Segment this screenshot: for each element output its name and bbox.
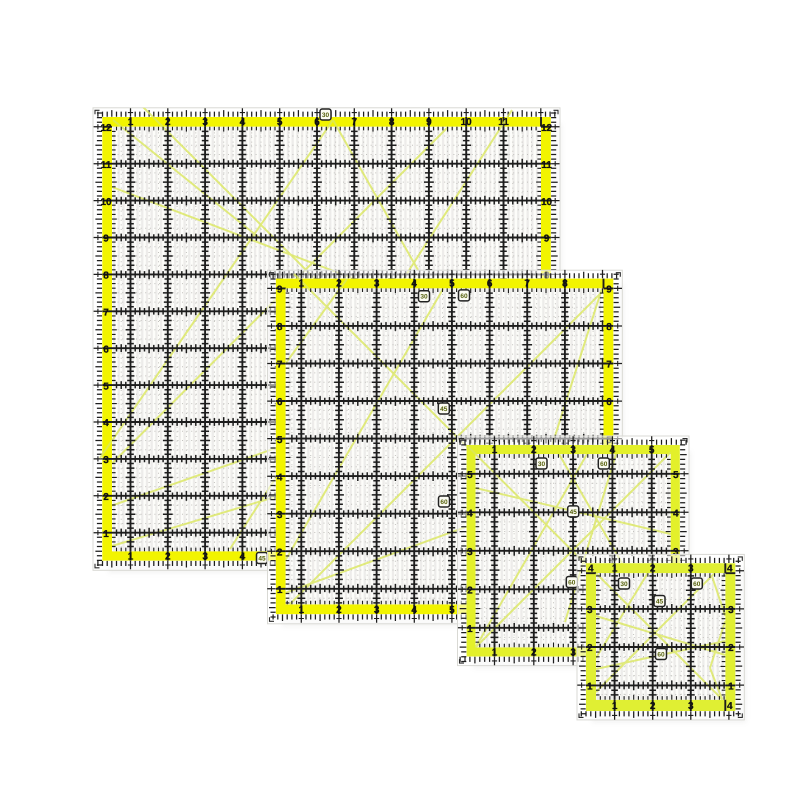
svg-text:3: 3 [688,564,694,575]
svg-text:2: 2 [650,564,656,575]
svg-text:30: 30 [420,294,428,301]
svg-text:4: 4 [240,117,246,128]
svg-text:3: 3 [688,701,694,712]
svg-text:1: 1 [492,648,498,659]
svg-text:3: 3 [103,455,109,466]
svg-text:2: 2 [531,445,537,456]
svg-text:60: 60 [568,579,576,586]
svg-text:8: 8 [389,117,395,128]
svg-text:11: 11 [541,160,552,171]
svg-text:12: 12 [100,123,112,134]
svg-text:30: 30 [538,461,546,468]
svg-text:60: 60 [440,499,448,506]
svg-text:1: 1 [299,605,305,616]
svg-text:3: 3 [728,605,734,616]
svg-text:6: 6 [487,279,493,290]
svg-text:4: 4 [277,472,283,483]
svg-text:60: 60 [460,293,468,300]
svg-text:45: 45 [656,598,664,605]
svg-text:4: 4 [240,552,246,563]
svg-text:2: 2 [103,492,109,503]
svg-text:3: 3 [467,547,473,558]
svg-text:4: 4 [610,445,616,456]
svg-text:5: 5 [673,470,679,481]
svg-text:1: 1 [492,445,498,456]
svg-text:5: 5 [449,605,455,616]
svg-text:5: 5 [103,381,109,392]
svg-text:8: 8 [562,279,568,290]
svg-text:3: 3 [587,605,593,616]
svg-text:60: 60 [657,651,665,658]
svg-text:9: 9 [426,117,432,128]
svg-text:2: 2 [336,279,342,290]
svg-text:2: 2 [336,605,342,616]
svg-text:10: 10 [100,197,112,208]
svg-text:9: 9 [544,234,550,245]
svg-text:12: 12 [541,123,553,134]
svg-text:1: 1 [612,701,618,712]
svg-text:1: 1 [612,564,618,575]
svg-text:7: 7 [103,308,109,319]
svg-text:9: 9 [606,285,612,296]
svg-text:3: 3 [374,279,380,290]
svg-text:60: 60 [600,461,608,468]
svg-text:5: 5 [277,117,283,128]
svg-text:4: 4 [411,279,417,290]
svg-text:6: 6 [277,397,283,408]
svg-text:4: 4 [467,509,473,520]
svg-text:4: 4 [727,701,733,712]
svg-text:1: 1 [587,682,593,693]
svg-text:8: 8 [606,322,612,333]
svg-text:7: 7 [606,360,612,371]
svg-text:5: 5 [467,470,473,481]
svg-text:45: 45 [570,509,578,516]
svg-text:2: 2 [165,117,171,128]
svg-text:7: 7 [277,360,283,371]
svg-text:6: 6 [606,397,612,408]
svg-text:9: 9 [103,234,109,245]
svg-text:2: 2 [587,643,593,654]
svg-text:6: 6 [314,117,320,128]
svg-text:4: 4 [103,418,109,429]
svg-text:5: 5 [649,445,655,456]
svg-text:30: 30 [322,112,330,119]
svg-text:1: 1 [467,624,473,635]
svg-text:8: 8 [277,322,283,333]
svg-text:2: 2 [467,586,473,597]
svg-text:3: 3 [202,552,208,563]
svg-text:60: 60 [693,581,701,588]
svg-text:1: 1 [128,117,134,128]
svg-text:3: 3 [570,445,576,456]
svg-text:11: 11 [498,117,509,128]
svg-text:2: 2 [277,548,283,559]
svg-text:1: 1 [128,552,134,563]
svg-text:11: 11 [101,160,112,171]
svg-text:3: 3 [374,605,380,616]
svg-text:1: 1 [277,585,283,596]
svg-text:2: 2 [728,643,734,654]
svg-text:4: 4 [588,564,594,575]
svg-text:1: 1 [103,529,109,540]
svg-text:10: 10 [541,197,553,208]
svg-text:10: 10 [461,117,473,128]
svg-text:2: 2 [531,648,537,659]
svg-text:6: 6 [103,344,109,355]
svg-text:8: 8 [103,271,109,282]
svg-text:45: 45 [258,555,266,562]
svg-text:7: 7 [352,117,358,128]
svg-text:3: 3 [277,510,283,521]
svg-text:3: 3 [202,117,208,128]
svg-text:1: 1 [728,682,734,693]
svg-text:4: 4 [727,564,733,575]
svg-text:3: 3 [570,648,576,659]
svg-text:2: 2 [165,552,171,563]
svg-text:30: 30 [620,581,628,588]
svg-text:4: 4 [673,509,679,520]
svg-text:1: 1 [299,279,305,290]
svg-text:2: 2 [650,701,656,712]
svg-text:45: 45 [440,406,448,413]
svg-text:5: 5 [277,435,283,446]
svg-text:9: 9 [277,285,283,296]
svg-text:5: 5 [449,279,455,290]
svg-text:7: 7 [524,279,530,290]
svg-text:4: 4 [411,605,417,616]
